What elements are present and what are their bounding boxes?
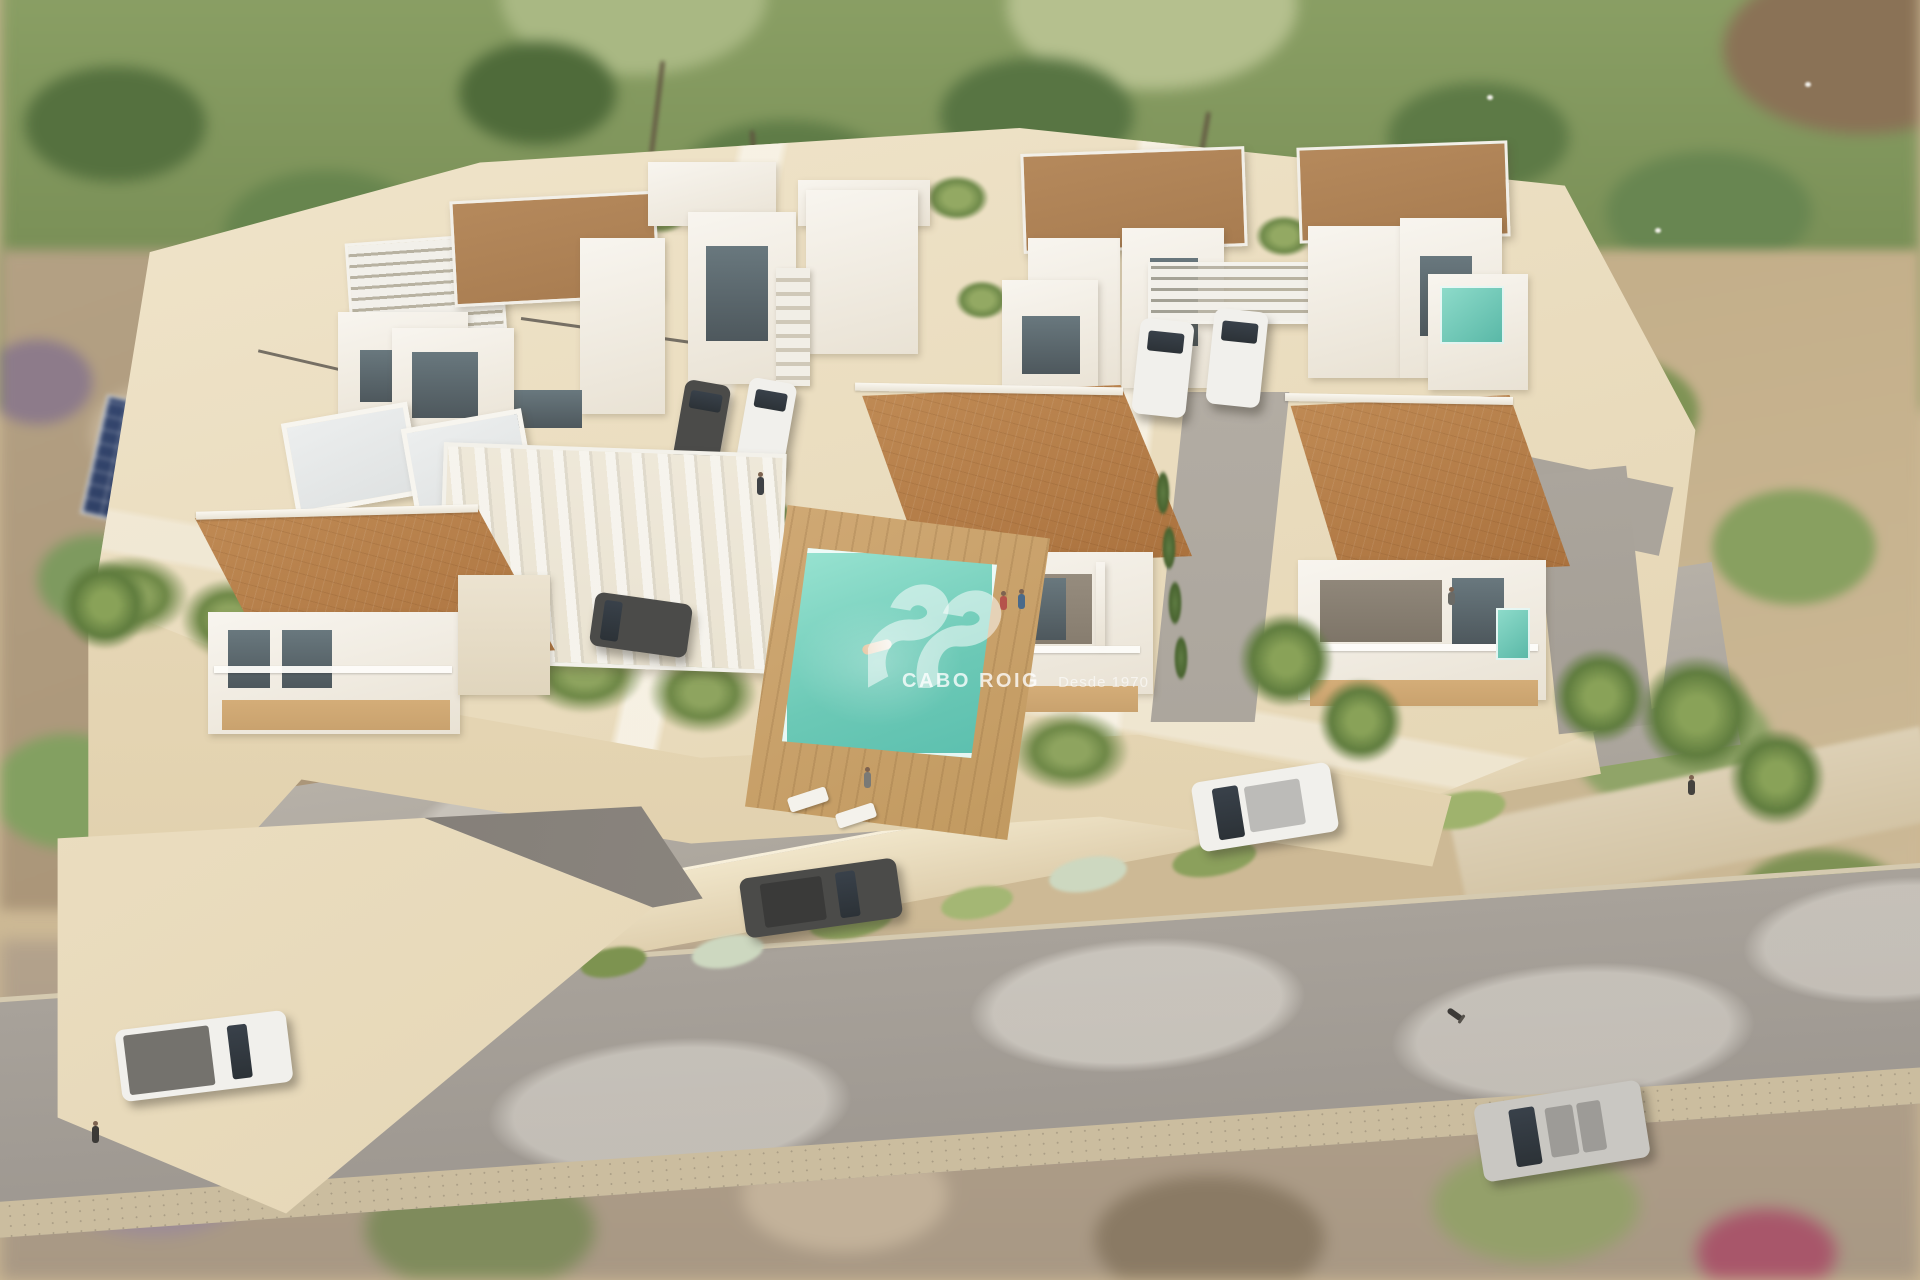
corner-tree [1728,728,1826,826]
roadside-tree [60,560,150,650]
garden-bush [955,280,1009,320]
windshield [600,600,623,642]
windshield [688,390,723,413]
terrace-pool [1440,286,1504,344]
cypress-tree [1168,580,1182,626]
person-on-terrace [1448,592,1455,605]
person-on-balcony [1018,594,1025,609]
cypress-tree [1162,525,1176,571]
bird-speck [1805,82,1811,87]
garden-tree [1318,678,1404,764]
windshield [835,870,861,918]
windshield [1147,330,1185,354]
villa-side-volume [458,575,550,695]
windshield [227,1024,253,1080]
villa-window [228,630,270,688]
house-volume [806,190,918,354]
person-at-gate [1688,780,1695,795]
bird-speck [1655,228,1661,233]
sunroof [1544,1104,1579,1158]
house-window [706,246,768,341]
garden-bush [925,175,989,221]
balcony-column [1096,562,1105,646]
pedestrian [92,1126,99,1143]
balcony-interior [1320,580,1442,642]
villa-window [282,630,332,688]
house-volume [580,238,665,414]
vine-cascade [1010,710,1130,792]
balcony-window [1022,316,1080,374]
person-near-pool [864,772,871,788]
pedestrian [757,477,764,495]
windshield [1508,1106,1543,1167]
person-on-balcony [1000,596,1007,610]
aerial-development-render: CABO ROIG Desde 1970 [0,0,1920,1280]
terrace-pool [1496,608,1530,660]
windshield [753,389,788,412]
garden-tree [1552,648,1648,744]
house-window [412,352,478,418]
cypress-tree [1156,470,1170,516]
communal-pool [782,548,997,758]
bird-speck [1487,95,1493,100]
roof-panel [760,876,828,928]
exterior-stairs [776,268,810,386]
windshield [1221,320,1259,344]
balcony-rail [214,666,452,673]
sunroof [1576,1100,1608,1153]
garden-tree [1238,612,1334,708]
parked-car-white [1131,317,1195,418]
windshield [1212,785,1246,840]
cypress-tree [1174,635,1188,681]
terrace-deck [222,700,450,730]
parked-car-white [1205,307,1269,408]
sunroof [1244,778,1307,832]
cargo-roof [123,1025,216,1095]
house-volume [1308,226,1400,378]
